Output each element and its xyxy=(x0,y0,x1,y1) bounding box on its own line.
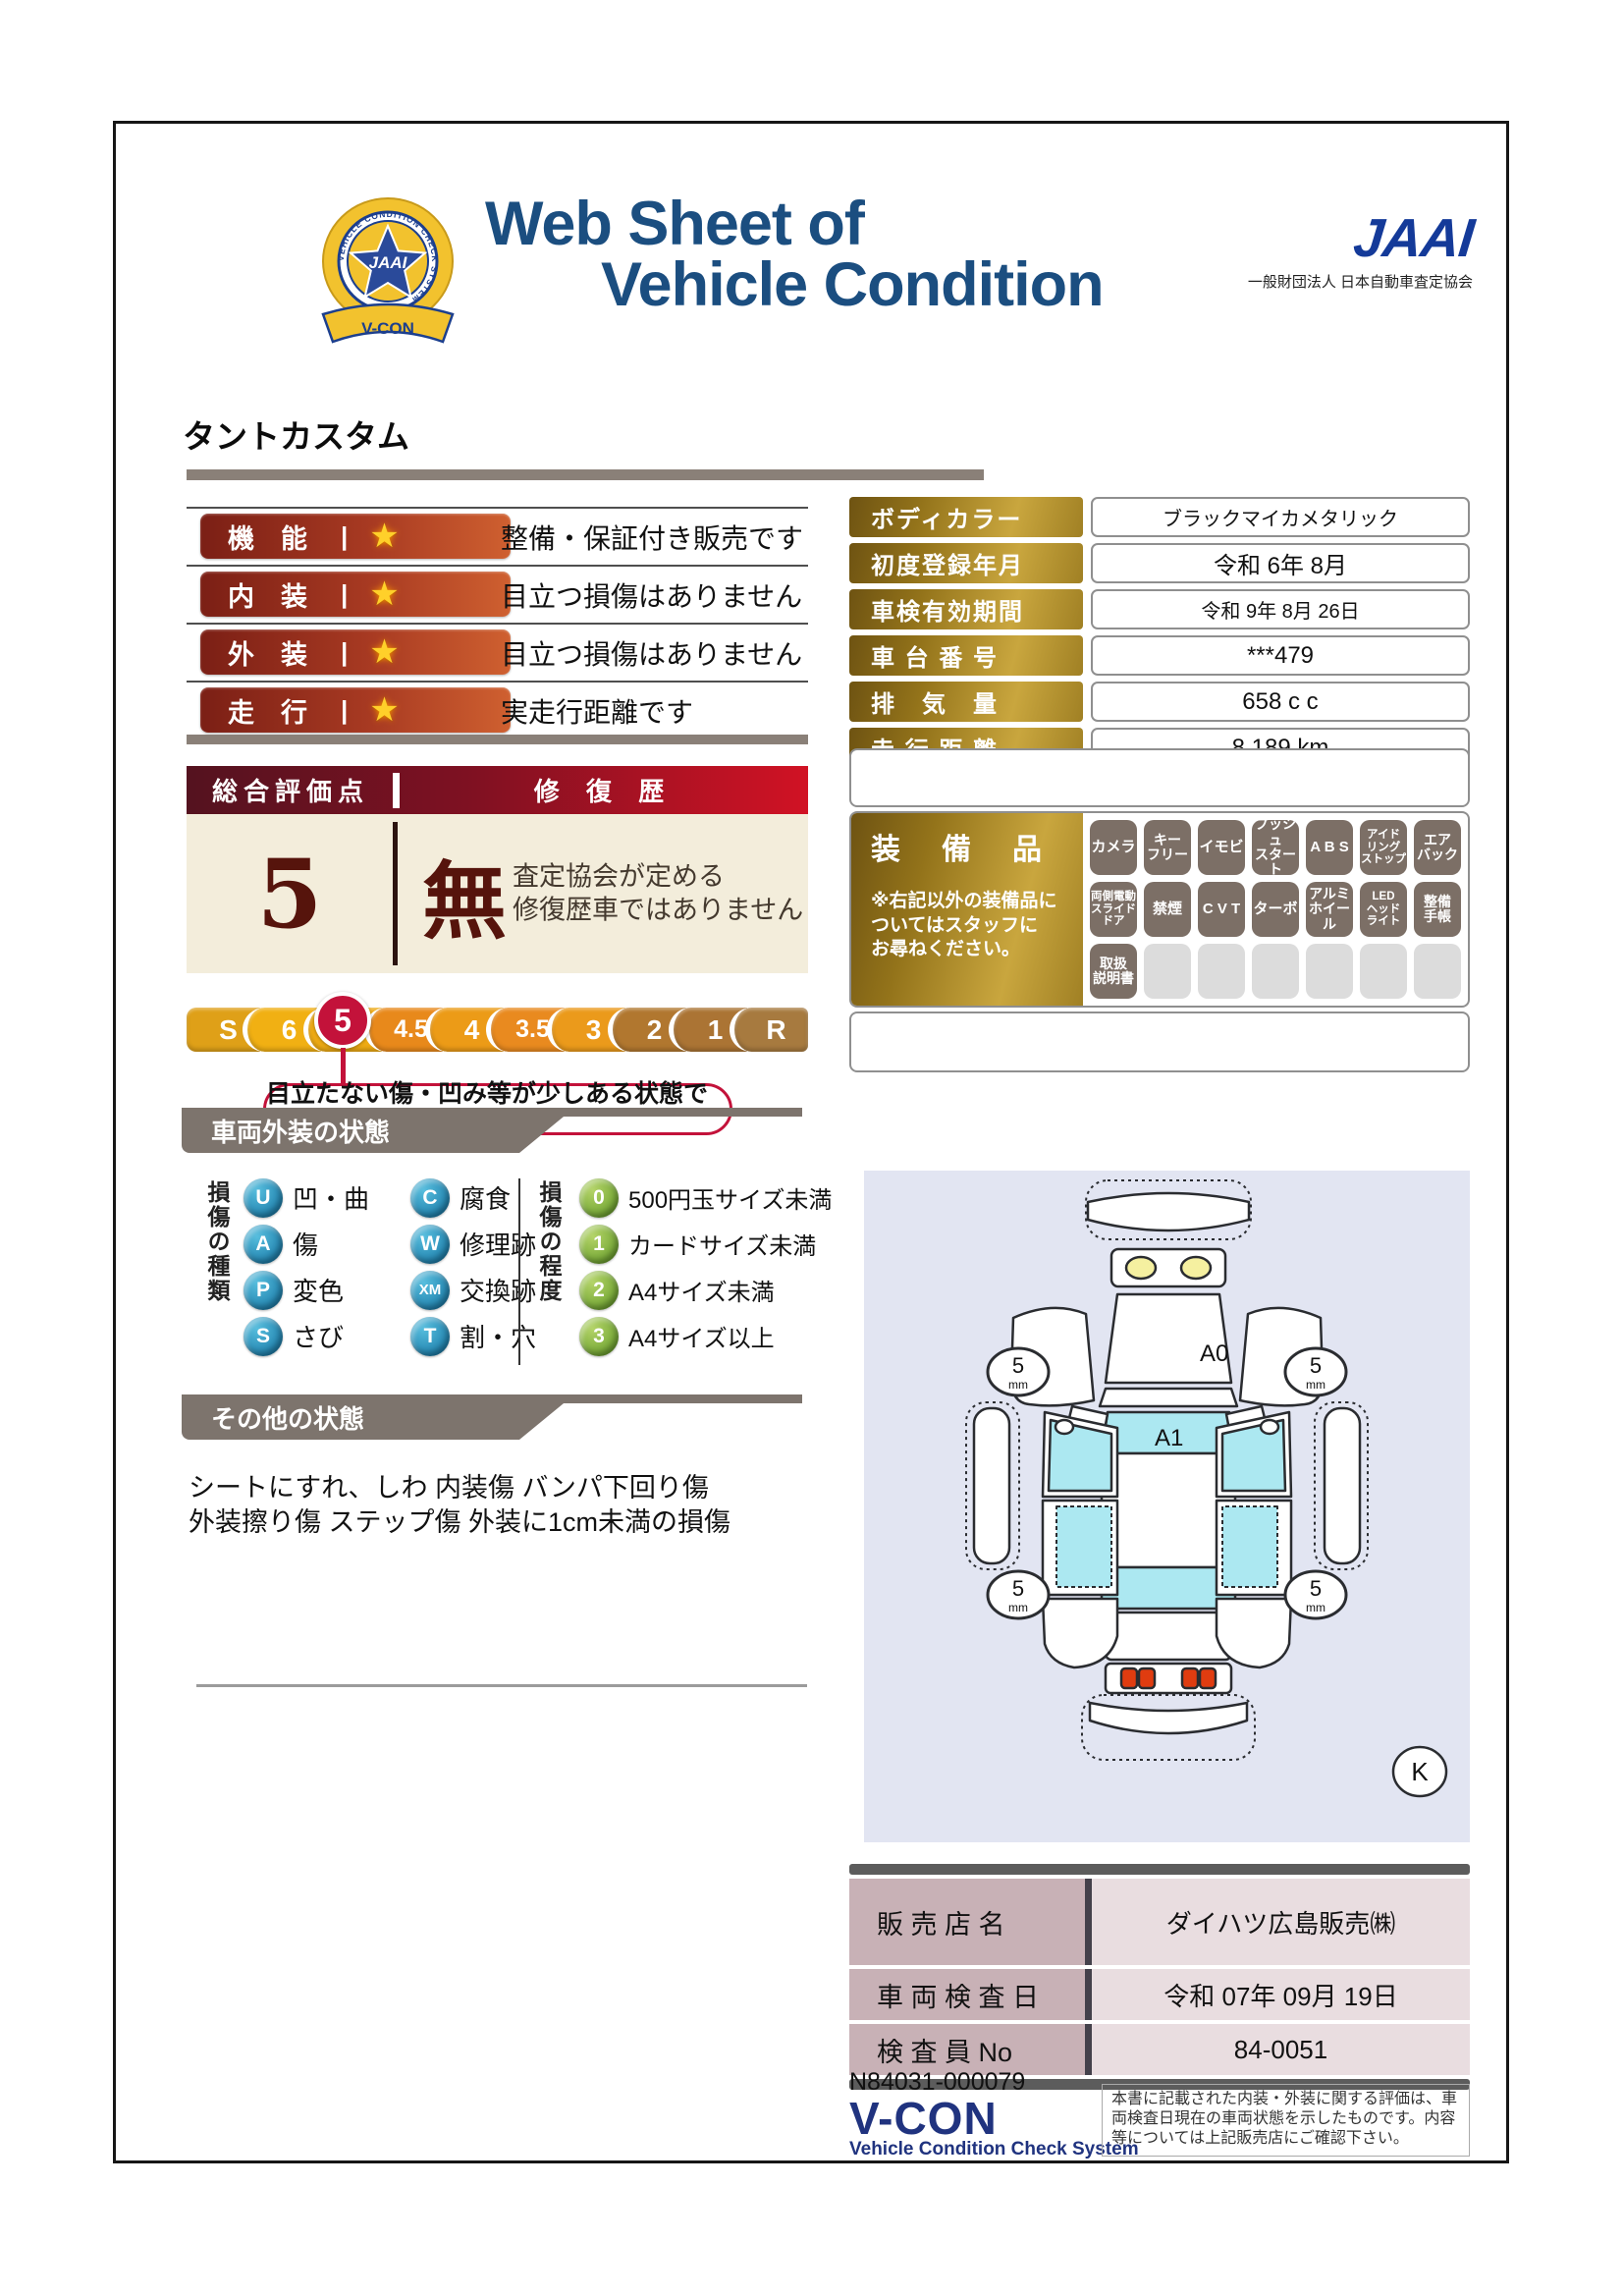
tire-front-right: 5 mm xyxy=(1285,1348,1346,1395)
info-label: ボディカラー xyxy=(849,497,1083,537)
equipment-item: キー フリー xyxy=(1144,820,1191,875)
rating-comment: 目立つ損傷はありません xyxy=(501,575,802,615)
svg-text:mm: mm xyxy=(1008,1378,1028,1392)
body-separator xyxy=(393,822,398,965)
equipment-item: エア バック xyxy=(1414,820,1461,875)
key-mark: K xyxy=(1393,1747,1446,1796)
scale-segment-label: S xyxy=(209,1014,238,1046)
rating-pill: 外 装|★ xyxy=(200,629,511,675)
page-title: Web Sheet of Vehicle Condition xyxy=(485,194,1104,315)
scale-segment-label: 2 xyxy=(637,1014,663,1046)
vcon-logo-text: V-CON xyxy=(849,2092,998,2145)
vehicle-info-table: ボディカラーブラックマイカメタリック初度登録年月令和 6年 8月車検有効期間令和… xyxy=(849,497,1470,774)
damage-degree-item: 0500円玉サイズ未満 xyxy=(579,1175,832,1221)
equipment-empty-slot xyxy=(1306,944,1353,999)
damage-type-name: さび xyxy=(293,1318,344,1354)
damage-mark-windshield: A1 xyxy=(1155,1425,1183,1451)
equipment-item: イモビ xyxy=(1198,820,1245,875)
star-icon: ★ xyxy=(369,690,399,730)
damage-type-name: 変色 xyxy=(293,1272,344,1308)
overall-score-header: 総合評価点 修 復 歴 xyxy=(187,766,808,814)
info-value: 658 c c xyxy=(1091,682,1470,722)
info-label: 車 台 番 号 xyxy=(849,635,1083,676)
damage-type-name: 凹・曲 xyxy=(293,1179,369,1216)
dealer-row-value: 84-0051 xyxy=(1085,2024,1470,2075)
damage-type-code: W xyxy=(410,1225,450,1264)
damage-type-code: S xyxy=(243,1317,283,1356)
scale-segment-label: 3 xyxy=(576,1014,602,1046)
badge-ribbon-text: V-CON xyxy=(361,319,414,338)
badge-org-text: JAAI xyxy=(369,253,408,272)
equipment-item: A B S xyxy=(1306,820,1353,875)
car-damage-diagram: 5 mm 5 mm 5 mm 5 mm A0 A1 xyxy=(864,1171,1470,1842)
damage-type-code: XM xyxy=(410,1271,450,1310)
star-icon: ★ xyxy=(369,517,399,556)
info-row: 車 台 番 号***479 xyxy=(849,635,1470,676)
svg-text:5: 5 xyxy=(1310,1576,1322,1601)
damage-degree-code: 0 xyxy=(579,1178,619,1218)
damage-type-item: P変色 xyxy=(243,1267,410,1313)
damage-type-code: C xyxy=(410,1178,450,1218)
info-value: 令和 9年 8月 26日 xyxy=(1091,589,1470,629)
empty-equipment-box xyxy=(849,1011,1470,1072)
damage-type-name: 割・穴 xyxy=(460,1318,536,1354)
jaai-logo-block: JAAI 一般財団法人 日本自動車査定協会 xyxy=(1216,206,1473,292)
dealer-row-label: 車 両 検 査 日 xyxy=(849,1969,1085,2020)
svg-text:5: 5 xyxy=(1012,1353,1024,1378)
damage-degree-item: 3A4サイズ以上 xyxy=(579,1313,832,1359)
damage-type-item: A傷 xyxy=(243,1221,410,1267)
tire-front-left: 5 mm xyxy=(988,1348,1049,1395)
rating-separator: | xyxy=(341,695,348,726)
rating-label: 内 装 xyxy=(228,575,307,614)
svg-text:5: 5 xyxy=(1310,1353,1322,1378)
dealer-table: 販 売 店 名ダイハツ広島販売㈱車 両 検 査 日令和 07年 09月 19日検… xyxy=(849,1864,1470,2090)
info-row: ボディカラーブラックマイカメタリック xyxy=(849,497,1470,537)
tire-rear-right: 5 mm xyxy=(1285,1571,1346,1618)
tire-rear-left: 5 mm xyxy=(988,1571,1049,1618)
equipment-item: カメラ xyxy=(1090,820,1137,875)
info-value: 令和 6年 8月 xyxy=(1091,543,1470,583)
damage-type-code: U xyxy=(243,1178,283,1218)
equipment-grid: カメラキー フリーイモビプッシュ スタートA B Sアイド リング ストップエア… xyxy=(1083,813,1468,1006)
repair-history-note: 査定協会が定める 修復歴車ではありません xyxy=(513,860,803,927)
rating-label: 機 能 xyxy=(228,518,307,556)
vehicle-condition-sheet: VEHICLE CONDITION CHECK SYSTEM JAAI V-CO… xyxy=(0,0,1623,2296)
star-icon: ★ xyxy=(369,574,399,614)
info-label: 初度登録年月 xyxy=(849,543,1083,583)
damage-degree-name: A4サイズ未満 xyxy=(628,1273,775,1307)
damage-degree-item: 1カードサイズ未満 xyxy=(579,1221,832,1267)
damage-legend: 損傷の種類 U凹・曲C腐食A傷W修理跡P変色XM交換跡SさびT割・穴 損傷の程度… xyxy=(194,1175,846,1369)
jaai-logo: JAAI xyxy=(1350,206,1476,269)
info-value: ブラックマイカメタリック xyxy=(1091,497,1470,537)
dealer-row-value: 令和 07年 09月 19日 xyxy=(1085,1969,1470,2020)
equipment-item: 両側電動 スライド ドア xyxy=(1090,882,1137,937)
equipment-item: アルミ ホイール xyxy=(1306,882,1353,937)
equipment-note: ※右記以外の装備品に ついてはスタッフに お尋ねください。 xyxy=(871,890,1083,962)
svg-text:K: K xyxy=(1411,1757,1429,1786)
info-row: 排 気 量658 c c xyxy=(849,682,1470,722)
rating-pill: 内 装|★ xyxy=(200,572,511,617)
damage-type-label: 損傷の種類 xyxy=(200,1180,234,1363)
damage-degree-code: 2 xyxy=(579,1271,619,1310)
equipment-item: C V T xyxy=(1198,882,1245,937)
info-row: 車検有効期間令和 9年 8月 26日 xyxy=(849,589,1470,629)
exterior-section-header: 車両外装の状態 xyxy=(182,1108,574,1153)
other-section-header: その他の状態 xyxy=(182,1394,574,1440)
rating-separator: | xyxy=(341,521,348,552)
rating-row: 機 能|★整備・保証付き販売です xyxy=(187,507,808,565)
equipment-empty-slot xyxy=(1252,944,1299,999)
scale-segment-label: 3.5 xyxy=(506,1015,550,1044)
divider-bar xyxy=(187,735,808,744)
equipment-title: 装 備 品 xyxy=(871,825,1083,868)
damage-degree-list: 0500円玉サイズ未満1カードサイズ未満2A4サイズ未満3A4サイズ以上 xyxy=(579,1175,832,1359)
rating-pill: 走 行|★ xyxy=(200,687,511,733)
jaai-subtitle: 一般財団法人 日本自動車査定協会 xyxy=(1216,271,1473,292)
damage-degree-name: 500円玉サイズ未満 xyxy=(628,1180,832,1215)
rating-comment: 目立つ損傷はありません xyxy=(501,633,802,673)
star-icon: ★ xyxy=(369,632,399,672)
dealer-row: 販 売 店 名ダイハツ広島販売㈱ xyxy=(849,1879,1470,1965)
damage-type-item: U凹・曲 xyxy=(243,1175,410,1221)
equipment-item: 取扱 説明書 xyxy=(1090,944,1137,999)
table-top-bar xyxy=(849,1864,1470,1875)
equipment-item: ターボ xyxy=(1252,882,1299,937)
info-label: 排 気 量 xyxy=(849,682,1083,722)
rating-rows: 機 能|★整備・保証付き販売です内 装|★目立つ損傷はありません外 装|★目立つ… xyxy=(187,507,808,740)
disclaimer-text: 本書に記載された内装・外装に関する評価は、車両検査日現在の車両状態を示したもので… xyxy=(1102,2084,1470,2157)
damage-type-name: 交換跡 xyxy=(460,1272,536,1308)
damage-type-code: P xyxy=(243,1271,283,1310)
equipment-item: 禁煙 xyxy=(1144,882,1191,937)
damage-degree-code: 3 xyxy=(579,1317,619,1356)
vcon-badge-logo: VEHICLE CONDITION CHECK SYSTEM JAAI V-CO… xyxy=(299,189,476,363)
scale-segment-label: 4 xyxy=(455,1014,480,1046)
damage-type-code: A xyxy=(243,1225,283,1264)
damage-type-name: 傷 xyxy=(293,1226,318,1262)
divider-bar xyxy=(187,469,984,480)
svg-text:mm: mm xyxy=(1306,1378,1325,1392)
rating-comment: 整備・保証付き販売です xyxy=(501,518,803,557)
damage-type-name: 腐食 xyxy=(460,1179,511,1216)
info-label: 車検有効期間 xyxy=(849,589,1083,629)
scale-segment-label: R xyxy=(756,1014,785,1046)
score-scale-selected: 5 xyxy=(314,992,371,1049)
equipment-item: 整備 手帳 xyxy=(1414,882,1461,937)
overall-score-value: 5 xyxy=(187,814,393,973)
damage-degree-name: カードサイズ未満 xyxy=(628,1227,816,1261)
damage-type-name: 修理跡 xyxy=(460,1226,536,1262)
damage-type-code: T xyxy=(410,1317,450,1356)
equipment-empty-slot xyxy=(1360,944,1407,999)
scale-segment-label: 1 xyxy=(698,1014,724,1046)
vcon-subtitle: Vehicle Condition Check System xyxy=(849,2139,1139,2160)
overall-score-label: 総合評価点 xyxy=(187,772,393,808)
rating-comment: 実走行距離です xyxy=(501,691,693,731)
equipment-empty-slot xyxy=(1198,944,1245,999)
equipment-label-panel: 装 備 品 ※右記以外の装備品に ついてはスタッフに お尋ねください。 xyxy=(851,813,1083,1006)
rating-label: 走 行 xyxy=(228,691,307,730)
damage-mark-hood: A0 xyxy=(1200,1340,1228,1367)
damage-type-item: Sさび xyxy=(243,1313,410,1359)
rating-row: 走 行|★実走行距離です xyxy=(187,681,808,738)
rating-label: 外 装 xyxy=(228,633,307,672)
legend-divider xyxy=(518,1178,520,1365)
score-scale-bar: S654.543.5321R xyxy=(187,1008,808,1052)
svg-text:mm: mm xyxy=(1008,1601,1028,1614)
page-title-line2: Vehicle Condition xyxy=(601,255,1104,316)
equipment-empty-slot xyxy=(1144,944,1191,999)
equipment-item: LED ヘッド ライト xyxy=(1360,882,1407,937)
divider-line xyxy=(196,1684,807,1687)
damage-degree-code: 1 xyxy=(579,1225,619,1264)
svg-text:mm: mm xyxy=(1306,1601,1325,1614)
page-title-line1: Web Sheet of xyxy=(485,194,1104,255)
equipment-item: プッシュ スタート xyxy=(1252,820,1299,875)
other-condition-text: シートにすれ、しわ 内装傷 バンパ下回り傷 外装擦り傷 ステップ傷 外装に1cm… xyxy=(189,1471,817,1540)
repair-history-value: 無 xyxy=(422,833,507,956)
rating-row: 外 装|★目立つ損傷はありません xyxy=(187,623,808,681)
dealer-row-label: 販 売 店 名 xyxy=(849,1879,1085,1965)
svg-text:5: 5 xyxy=(1012,1576,1024,1601)
dealer-row-value: ダイハツ広島販売㈱ xyxy=(1085,1879,1470,1965)
rating-pill: 機 能|★ xyxy=(200,514,511,559)
equipment-box: 装 備 品 ※右記以外の装備品に ついてはスタッフに お尋ねください。 カメラキ… xyxy=(849,811,1470,1008)
rating-separator: | xyxy=(341,579,348,610)
damage-degree-item: 2A4サイズ未満 xyxy=(579,1267,832,1313)
rating-separator: | xyxy=(341,637,348,668)
empty-info-box xyxy=(849,748,1470,807)
damage-degree-name: A4サイズ以上 xyxy=(628,1319,775,1353)
equipment-item: アイド リング ストップ xyxy=(1360,820,1407,875)
equipment-empty-slot xyxy=(1414,944,1461,999)
header-separator xyxy=(393,773,400,808)
dealer-row: 車 両 検 査 日令和 07年 09月 19日 xyxy=(849,1969,1470,2020)
rating-row: 内 装|★目立つ損傷はありません xyxy=(187,565,808,623)
overall-score-body: 5 無 査定協会が定める 修復歴車ではありません xyxy=(187,814,808,973)
scale-segment-label: 4.5 xyxy=(384,1015,428,1044)
repair-history-label: 修 復 歴 xyxy=(400,772,808,808)
info-value: ***479 xyxy=(1091,635,1470,676)
scale-segment-R: R xyxy=(730,1008,808,1052)
damage-degree-label: 損傷の程度 xyxy=(532,1180,566,1363)
info-row: 初度登録年月令和 6年 8月 xyxy=(849,543,1470,583)
vehicle-name: タントカスタム xyxy=(183,410,409,458)
scale-segment-label: 6 xyxy=(272,1014,298,1046)
